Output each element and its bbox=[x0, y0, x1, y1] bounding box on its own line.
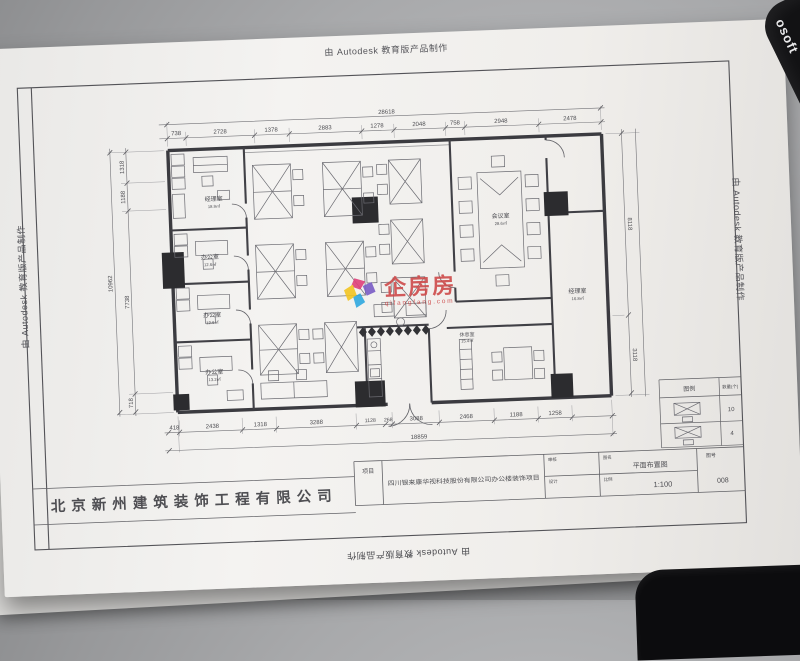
dim-label: 3118 bbox=[631, 348, 638, 362]
project-name: 四川银来康华视科技股份有限公司办公楼装饰项目 bbox=[388, 474, 540, 488]
dim-label: 1258 bbox=[548, 411, 562, 418]
room-area: 13.2㎡ bbox=[208, 376, 221, 383]
dim-label: 2948 bbox=[494, 118, 508, 125]
project-label: 项目 bbox=[362, 468, 374, 475]
drawing-name: 平面布置图 bbox=[633, 460, 668, 470]
watermark-brand: 企房房 bbox=[384, 274, 457, 299]
review-label: 审核 bbox=[548, 456, 558, 463]
drawing-no-value: 008 bbox=[717, 477, 729, 484]
dim-label: 1318 bbox=[120, 160, 127, 174]
watermark: 企房房 qifangfang.com bbox=[341, 272, 457, 312]
watermark-logo-icon bbox=[341, 275, 378, 312]
watermark-subtext: qifangfang.com bbox=[385, 298, 457, 307]
legend-header-qty: 数量(个) bbox=[722, 383, 739, 391]
title-block: 项目 四川银来康华视科技股份有限公司办公楼装饰项目 审核 设计 图名 比例 平面… bbox=[354, 447, 745, 506]
dim-label: 738 bbox=[171, 131, 182, 137]
floor-plan-sheet: 经理室 18.9㎡ 办公室 12.6㎡ 办公室 12.6㎡ 办公室 13.2㎡ … bbox=[0, 19, 800, 597]
dim-total: 18859 bbox=[411, 434, 429, 441]
drawing-name-label: 图名 bbox=[603, 454, 612, 461]
design-label: 设计 bbox=[549, 478, 559, 485]
dim-label: 2728 bbox=[213, 129, 227, 136]
room-label: 会议室 bbox=[491, 211, 509, 220]
legend-table: 图例 数量(个) 10 4 bbox=[659, 377, 744, 448]
room-area: 12.6㎡ bbox=[206, 319, 219, 326]
scale-label: 比例 bbox=[604, 476, 614, 483]
room-area: 15.4㎡ bbox=[461, 337, 474, 344]
dim-label: 7738 bbox=[125, 295, 132, 309]
dim-label: 2438 bbox=[206, 424, 220, 431]
legend-header-symbol: 图例 bbox=[683, 384, 695, 392]
left-dimensions: 1318 1188 7738 718 10962 bbox=[104, 160, 136, 409]
dim-label: 2048 bbox=[412, 122, 426, 129]
dim-label: 3088 bbox=[409, 416, 423, 423]
drawing-no-label: 图号 bbox=[706, 453, 716, 459]
dim-label: 1318 bbox=[254, 422, 268, 429]
break-room-furniture bbox=[459, 336, 545, 389]
scale-value: 1:100 bbox=[653, 479, 672, 489]
dim-label: 2478 bbox=[563, 116, 577, 123]
room-area: 28.6㎡ bbox=[495, 220, 508, 227]
dim-label: 418 bbox=[169, 425, 180, 431]
legend-desk-icon bbox=[675, 426, 702, 445]
room-label: 经理室 bbox=[205, 194, 223, 203]
room-label: 经理室 bbox=[568, 287, 586, 296]
room-label: 办公室 bbox=[203, 311, 221, 320]
legend-qty: 4 bbox=[730, 431, 734, 437]
legend-qty: 10 bbox=[728, 407, 736, 413]
dim-total: 28618 bbox=[378, 109, 396, 116]
dim-label: 2468 bbox=[459, 414, 473, 421]
dim-label: 1278 bbox=[370, 123, 384, 130]
room-area: 12.6㎡ bbox=[204, 261, 217, 268]
dim-total: 10962 bbox=[108, 275, 115, 293]
legend-desk-icon bbox=[674, 402, 701, 422]
dim-label: 758 bbox=[450, 120, 461, 126]
top-dimensions: 738 2728 1378 2883 1278 2048 758 2948 24… bbox=[171, 102, 578, 137]
room-label: 办公室 bbox=[201, 253, 219, 262]
dim-label: 3288 bbox=[310, 420, 324, 427]
company-band: 北京新州建筑装饰工程有限公司 bbox=[33, 477, 356, 525]
dim-label: 2883 bbox=[318, 125, 332, 132]
dim-label: 1128 bbox=[365, 418, 376, 424]
dim-label: 1188 bbox=[121, 190, 128, 204]
dim-label: 268 bbox=[384, 417, 393, 423]
corner-object-bottom-right bbox=[635, 561, 800, 660]
dim-label: 718 bbox=[129, 397, 135, 408]
dim-label: 1378 bbox=[264, 127, 278, 134]
dim-label: 1188 bbox=[510, 412, 524, 419]
company-name: 北京新州建筑装饰工程有限公司 bbox=[51, 486, 338, 515]
room-area: 18.9㎡ bbox=[208, 203, 221, 210]
room-label: 办公室 bbox=[205, 368, 223, 377]
dim-label: 8118 bbox=[626, 217, 633, 231]
room-area: 16.8㎡ bbox=[571, 295, 584, 302]
